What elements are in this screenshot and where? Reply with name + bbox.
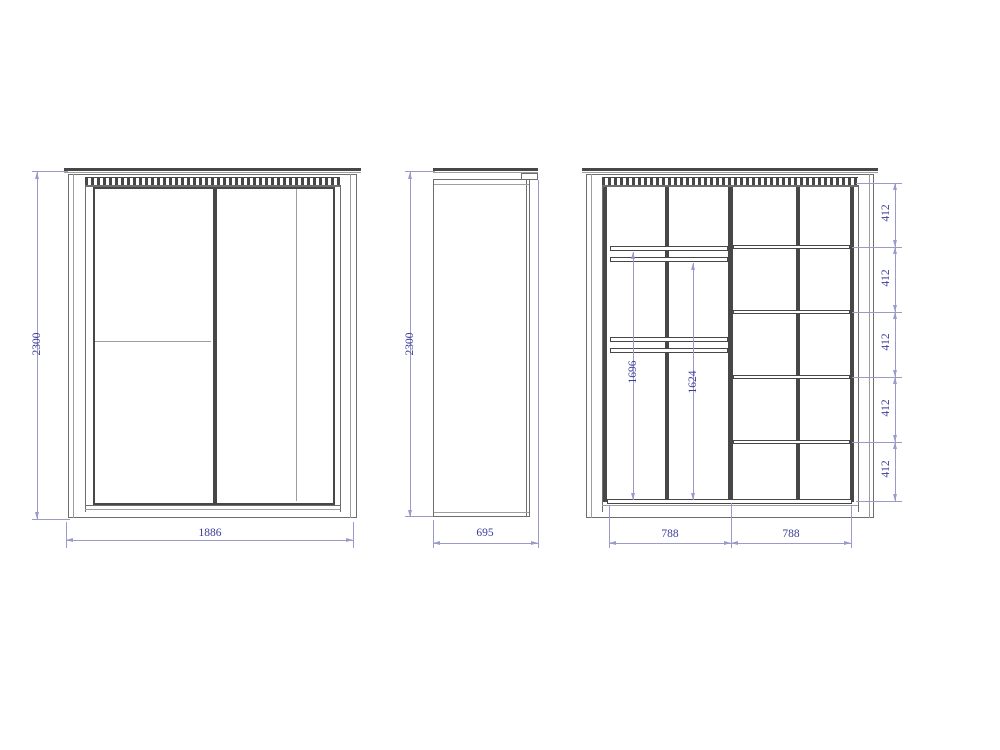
arrow-down-icon [691,493,695,500]
arrow-down-icon [893,370,897,377]
crown-molding-edge [582,172,878,173]
shelf [733,245,850,249]
arrow-up-icon [893,377,897,384]
hanging-rail [610,246,728,251]
arrow-left-icon [433,541,440,545]
left-door-panel-line [95,341,211,342]
hanging-rail [610,257,728,262]
top-rail-line [602,185,858,186]
arrow-down-icon [893,305,897,312]
arrow-up-icon [893,247,897,254]
dim-text-front-width: 1886 [130,527,290,539]
arrow-down-icon [893,240,897,247]
ext-line [538,180,539,548]
arrow-down-icon [893,494,897,501]
arrow-down-icon [408,510,412,517]
dim-text-side-height: 2300 [404,320,416,368]
dim-text-shelf-spacing-3: 412 [880,318,892,366]
front-edge-line [526,179,527,517]
dim-text-shelf-spacing-5: 412 [880,445,892,493]
left-section-divider [665,187,669,500]
dim-text-rail-height-left: 1696 [627,348,639,396]
dim-text-section-width-right: 788 [731,528,851,540]
side-panel-outline [433,179,530,517]
right-door-panel-line [296,189,297,501]
dim-text-section-width-left: 788 [610,528,730,540]
ext-line [856,501,902,502]
dim-text-side-depth: 695 [425,527,545,539]
dim-line-shelf-chain [895,183,896,501]
arrow-right-icon [346,538,353,542]
top-inner-line [434,184,529,185]
right-pilaster-line [350,174,351,518]
right-pilaster-inner-edge [340,185,341,512]
left-pilaster-line [73,174,74,518]
technical-drawing-canvas: 2300 1886 2300 695 [0,0,1000,750]
bottom-inner-line [434,512,529,513]
right-side-wall [850,187,854,502]
base-board-line [602,505,858,506]
arrow-right-icon [531,541,538,545]
crown-molding-edge [64,172,361,173]
ext-line [32,519,70,520]
ext-line [66,522,67,548]
arrow-right-icon [844,541,851,545]
arrow-up-icon [893,312,897,319]
hanging-rail [610,337,728,342]
arrow-down-icon [35,512,39,519]
arrow-left-icon [609,541,616,545]
crown-molding-top [582,168,878,171]
dim-text-shelf-spacing-2: 412 [880,254,892,302]
center-divider [728,187,733,500]
right-section-divider [796,187,800,500]
arrow-up-icon [35,172,39,179]
base-board-line [85,509,340,510]
top-rail-line [85,185,340,186]
arrow-left-icon [66,538,73,542]
shelf [733,440,850,444]
bottom-track-line [85,505,340,506]
crown-molding-top [433,168,538,171]
ext-line [353,522,354,548]
arrow-up-icon [691,263,695,270]
dim-text-front-height: 2300 [31,320,43,368]
arrow-up-icon [893,442,897,449]
dim-text-shelf-spacing-1: 412 [880,189,892,237]
left-pilaster-inner-edge [85,185,86,512]
shelf [733,310,850,314]
dim-line-front-width [66,540,353,541]
left-side-wall [603,187,607,502]
arrow-down-icon [631,493,635,500]
arrow-down-icon [893,435,897,442]
arrow-up-icon [408,172,412,179]
right-pilaster-inner-edge [858,185,859,512]
bottom-panel [607,499,852,504]
left-sliding-door [93,187,215,505]
crown-molding-top [64,168,361,171]
arrow-right-icon [724,541,731,545]
arrow-left-icon [731,541,738,545]
ext-line [851,505,852,548]
right-pilaster-line [869,174,870,518]
dim-text-shelf-spacing-4: 412 [880,384,892,432]
dim-text-rail-height-right: 1624 [687,358,699,406]
arrow-up-icon [631,252,635,259]
dim-line-side-depth [433,543,538,544]
shelf [733,375,850,379]
right-sliding-door [215,187,335,505]
left-pilaster-line [591,174,592,518]
arrow-up-icon [893,183,897,190]
